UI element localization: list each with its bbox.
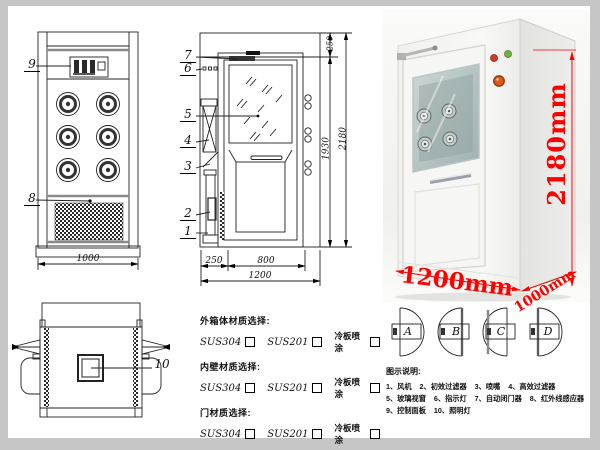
emergency-button	[494, 76, 504, 86]
material-option-label: 冷板喷涂	[334, 330, 366, 354]
side-nozzles-symbol	[305, 95, 311, 175]
callout-4: 4	[180, 135, 196, 148]
section-dim-1200: 1200	[238, 272, 282, 281]
door-config-label-c: C	[494, 325, 508, 338]
section-dim-800: 800	[250, 257, 282, 266]
material-selection: 外箱体材质选择: SUS304 SUS201 冷板喷涂 内壁材质选择: SUS3…	[200, 314, 380, 450]
parts-legend: 图示说明: 1、风机 2、初效过滤器 3、喷嘴 4、高效过滤器 5、玻璃视窗 6…	[386, 366, 576, 417]
material-options-row: SUS304 SUS201 冷板喷涂	[200, 422, 380, 446]
material-checkbox	[370, 337, 380, 347]
callout-1: 1	[180, 226, 196, 239]
indicator-light-green	[505, 51, 512, 58]
material-group-title: 外箱体材质选择:	[200, 314, 380, 327]
left-handle-plan	[12, 340, 40, 394]
callout-8: 8	[24, 193, 40, 206]
legend-line: 1、风机 2、初效过滤器 3、喷嘴 4、高效过滤器	[386, 381, 576, 393]
door-handle	[251, 156, 282, 160]
material-checkbox	[245, 429, 255, 439]
air-return-grille	[55, 203, 123, 240]
material-option-label: 冷板喷涂	[334, 376, 366, 400]
section-dim-1930: 1930	[323, 131, 332, 167]
callout-9: 9	[24, 59, 40, 72]
front-width-dim: 1000	[68, 255, 108, 264]
material-option-label: SUS201	[267, 337, 308, 348]
legend-title: 图示说明:	[386, 366, 576, 377]
indicator-lights-symbol	[203, 67, 217, 70]
callout-6: 6	[180, 63, 196, 76]
section-dim-250: 250	[201, 257, 227, 266]
callout-2: 2	[180, 208, 196, 221]
fan-symbol	[201, 99, 217, 152]
material-option-label: SUS304	[200, 429, 241, 440]
door-config-diagrams	[392, 308, 562, 356]
callout-10: 10	[152, 359, 172, 371]
material-option-label: SUS201	[267, 429, 308, 440]
glass-hatching	[237, 77, 282, 141]
material-option-label: SUS304	[200, 383, 241, 394]
material-checkbox	[370, 383, 380, 393]
material-option-label: SUS304	[200, 337, 241, 348]
material-checkbox	[312, 383, 322, 393]
material-options-row: SUS304 SUS201 冷板喷涂	[200, 330, 380, 354]
material-group-title: 门材质选择:	[200, 406, 380, 419]
door-closer	[229, 51, 260, 61]
callout-leaders	[196, 57, 259, 233]
top-view-drawing	[12, 303, 170, 417]
material-checkbox	[312, 429, 322, 439]
material-option-label: SUS201	[267, 383, 308, 394]
spec-sheet: 9 8 1000 7 6 5 4 3 2 1 250 800 1200 1930…	[0, 0, 600, 450]
material-checkbox	[370, 429, 380, 439]
product-photo: 2180mm 1200mm 1000mm	[383, 10, 590, 302]
material-option-label: 冷板喷涂	[334, 422, 366, 446]
section-dim-2180: 2180	[340, 121, 349, 157]
material-checkbox	[245, 337, 255, 347]
legend-line: 9、控制面板 10、照明灯	[386, 405, 576, 417]
material-checkbox	[245, 383, 255, 393]
filter-column	[203, 170, 218, 243]
control-panel	[70, 57, 108, 77]
material-checkbox	[312, 337, 322, 347]
nozzles-front	[57, 93, 120, 182]
door-config-label-a: A	[401, 325, 415, 338]
callout-3: 3	[180, 161, 196, 174]
front-view-drawing	[36, 32, 140, 270]
material-group-title: 内壁材质选择:	[200, 360, 380, 373]
material-options-row: SUS304 SUS201 冷板喷涂	[200, 376, 380, 400]
indicator-light-red	[491, 55, 498, 62]
legend-line: 5、玻璃视窗 6、指示灯 7、自动闭门器 8、红外线感应器	[386, 393, 576, 405]
section-dim-top: 250	[326, 31, 335, 57]
photo-height-dim: 2180mm	[545, 82, 569, 206]
door-config-label-d: D	[541, 325, 555, 338]
door-config-label-b: B	[449, 325, 463, 338]
callout-5: 5	[180, 109, 196, 122]
